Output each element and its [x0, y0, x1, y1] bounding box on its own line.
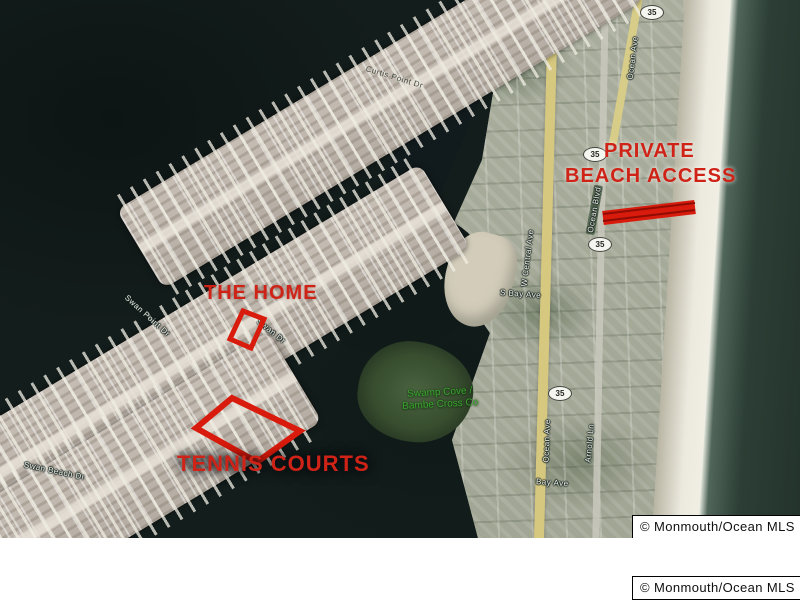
- mls-credit-footer: © Monmouth/Ocean MLS: [632, 576, 800, 600]
- annotation-beach-access: BEACH ACCESS: [565, 165, 736, 188]
- mls-credit-badge: © Monmouth/Ocean MLS: [632, 515, 800, 538]
- annotation-private: PRIVATE: [604, 140, 695, 163]
- home-marker-box: [230, 311, 264, 348]
- annotation-the-home: THE HOME: [204, 282, 318, 305]
- beach-access-marker: [603, 203, 695, 221]
- red-markers-overlay: [0, 0, 800, 538]
- annotation-tennis-courts: TENNIS COURTS: [177, 451, 370, 477]
- aerial-map-image: Curtis Point Dr Swan Dr Swan Point Dr Sw…: [0, 0, 800, 538]
